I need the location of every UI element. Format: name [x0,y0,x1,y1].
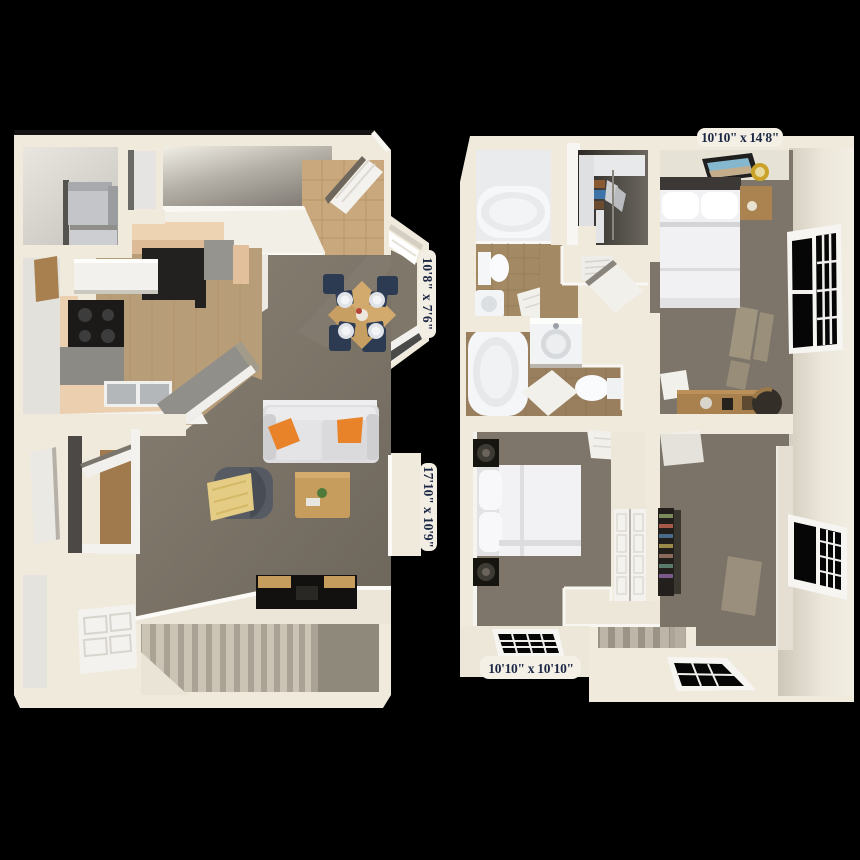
svg-text:10'10" x 14'8": 10'10" x 14'8" [701,130,779,145]
svg-text:10'10" x 10'10": 10'10" x 10'10" [488,661,574,676]
svg-text:10'8" x 7'6": 10'8" x 7'6" [420,257,435,330]
svg-text:17'10" x 10'9": 17'10" x 10'9" [421,466,436,548]
